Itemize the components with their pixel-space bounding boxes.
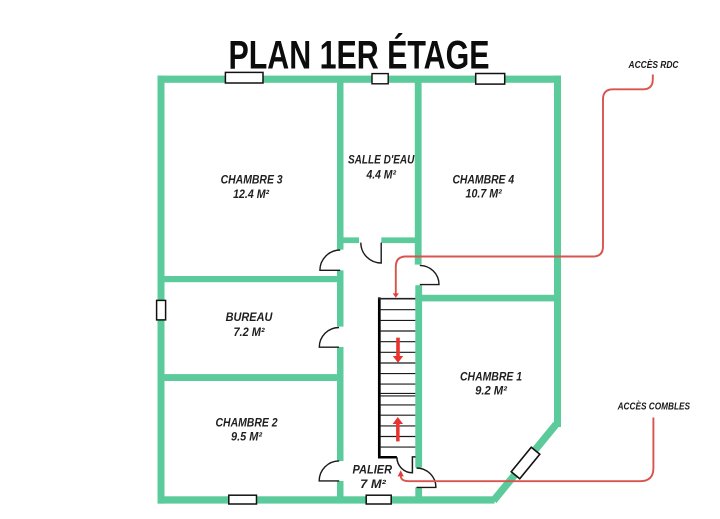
svg-text:BUREAU: BUREAU [226, 310, 274, 324]
svg-text:PALIER: PALIER [353, 463, 393, 477]
svg-text:CHAMBRE 3: CHAMBRE 3 [221, 172, 283, 186]
svg-text:7.2 M²: 7.2 M² [233, 325, 265, 339]
svg-text:PLAN 1ER ÉTAGE: PLAN 1ER ÉTAGE [229, 33, 490, 77]
svg-text:CHAMBRE 4: CHAMBRE 4 [452, 173, 514, 187]
svg-text:ACCÈS RDC: ACCÈS RDC [628, 58, 679, 71]
svg-text:10.7 M²: 10.7 M² [466, 186, 503, 200]
svg-text:CHAMBRE 2: CHAMBRE 2 [216, 416, 278, 430]
svg-text:12.4 M²: 12.4 M² [233, 187, 270, 201]
svg-text:7 M²: 7 M² [360, 477, 387, 491]
svg-text:CHAMBRE 1: CHAMBRE 1 [460, 370, 522, 384]
svg-text:9.5 M²: 9.5 M² [231, 430, 263, 444]
svg-text:ACCÈS COMBLES: ACCÈS COMBLES [617, 400, 690, 413]
svg-text:9.2 M²: 9.2 M² [475, 384, 508, 398]
svg-text:4.4 M²: 4.4 M² [366, 168, 397, 182]
svg-text:SALLE D'EAU: SALLE D'EAU [348, 153, 415, 167]
